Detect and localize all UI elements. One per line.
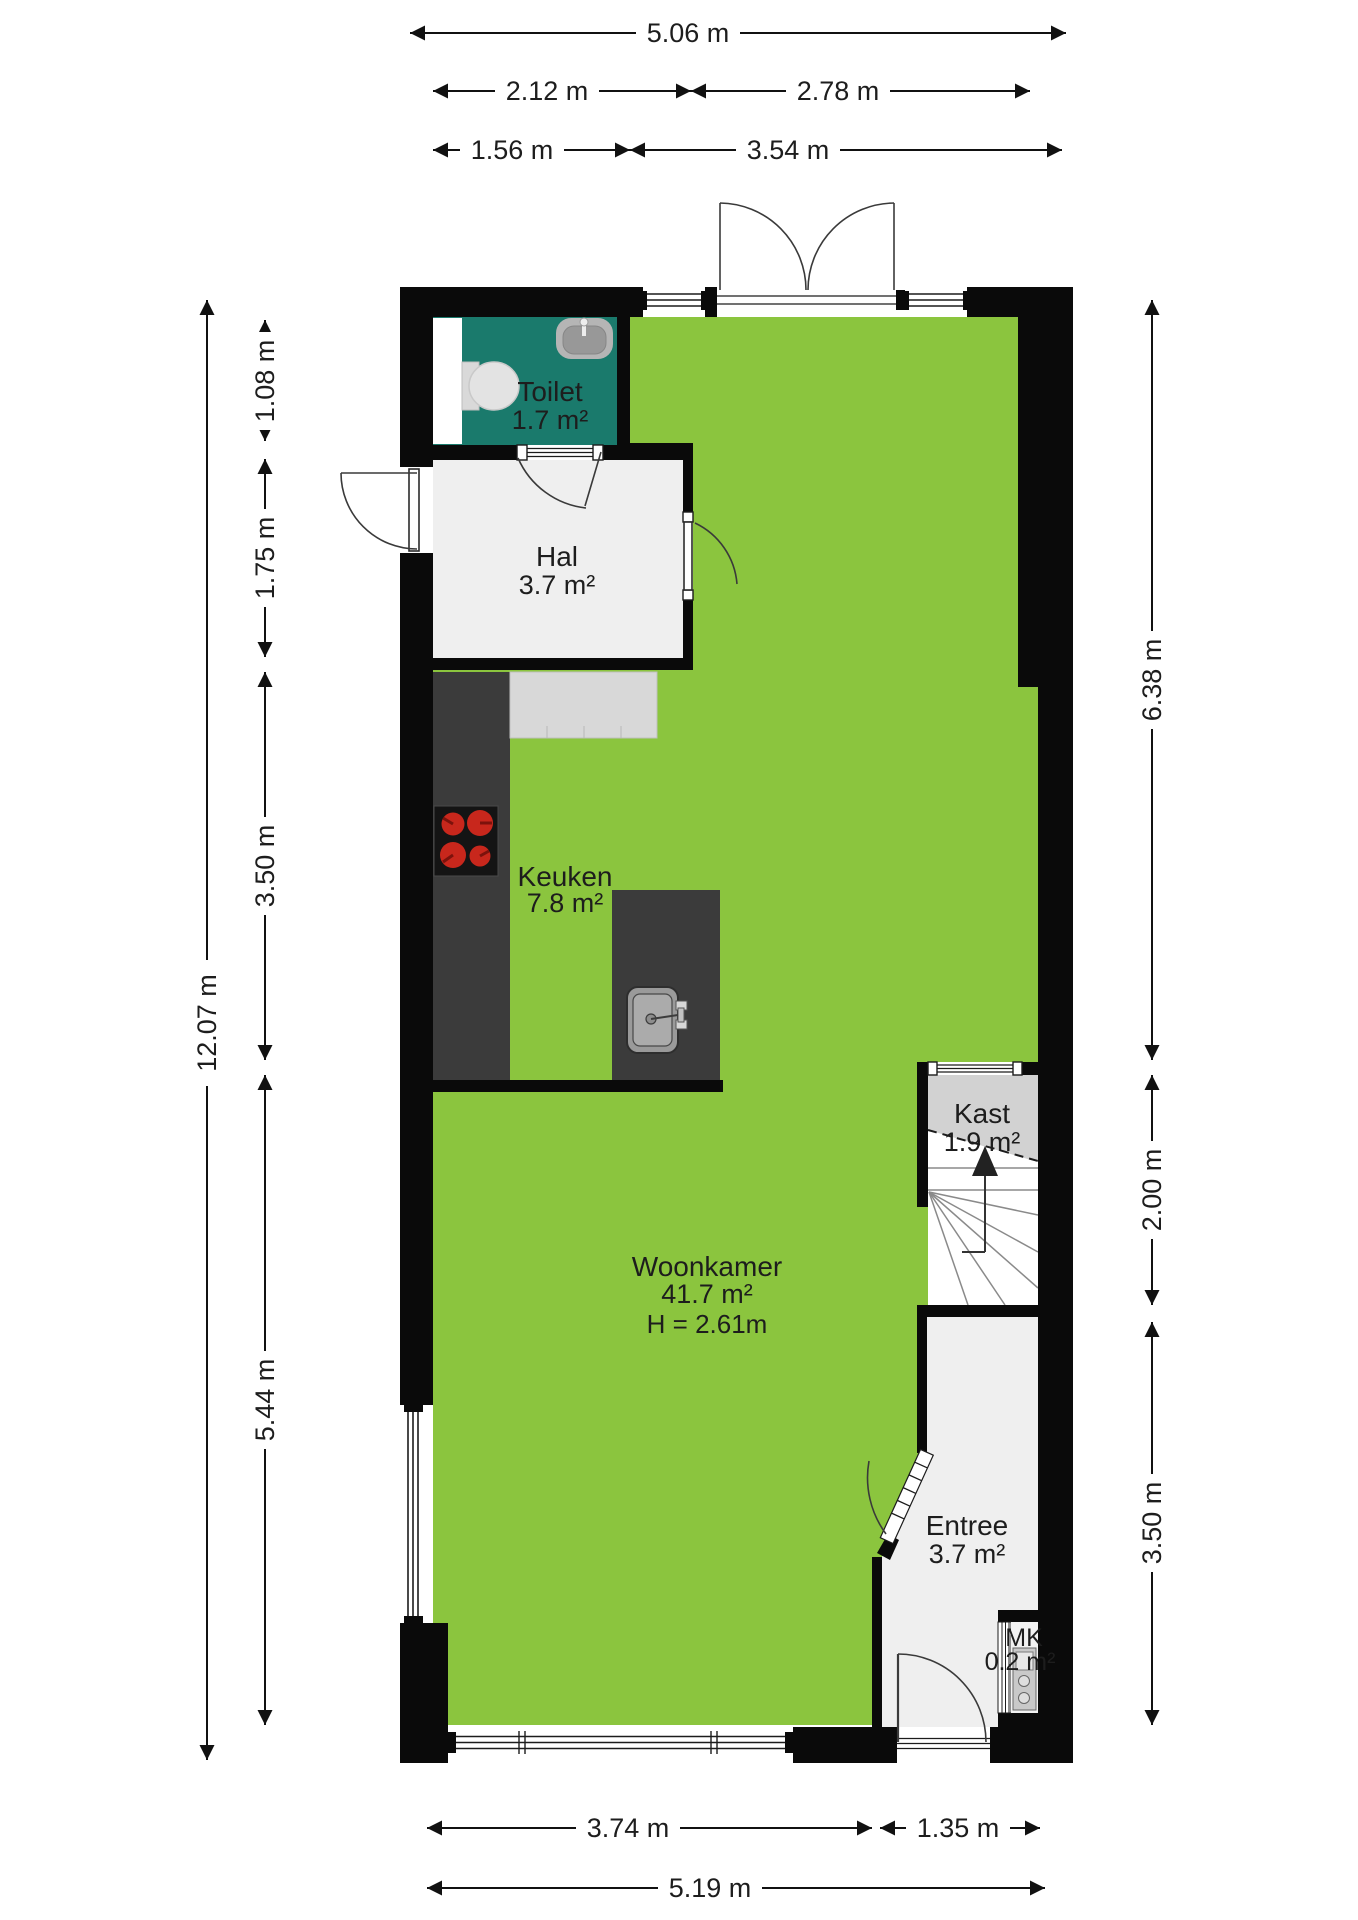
dim-top-total: 5.06 m (410, 18, 1066, 48)
hal-label: Hal (536, 541, 578, 572)
dim-left-seg3: 3.50 m (250, 672, 280, 1060)
toilet-area: 1.7 m² (512, 405, 589, 435)
svg-text:3.54 m: 3.54 m (747, 135, 830, 165)
dim-bottom-row1-left: 3.74 m (427, 1813, 872, 1843)
svg-text:2.00 m: 2.00 m (1137, 1149, 1167, 1232)
svg-text:1.56 m: 1.56 m (471, 135, 554, 165)
dim-right-seg1: 6.38 m (1137, 300, 1167, 1060)
dim-left-total: 12.07 m (192, 300, 222, 1760)
dim-left-seg2: 1.75 m (250, 459, 280, 657)
hal-area: 3.7 m² (519, 570, 596, 600)
mk-area: 0.2 m² (985, 1648, 1056, 1676)
floorplan-page: Toilet 1.7 m² Hal 3.7 m² Keuken 7.8 m² W… (0, 0, 1358, 1920)
svg-text:5.06 m: 5.06 m (647, 18, 730, 48)
dim-right-seg3: 3.50 m (1137, 1322, 1167, 1725)
svg-text:1.35 m: 1.35 m (917, 1813, 1000, 1843)
dim-top-row3-left: 1.56 m (433, 135, 630, 165)
woonkamer-area: 41.7 m² (661, 1279, 753, 1309)
svg-text:3.74 m: 3.74 m (587, 1813, 670, 1843)
dim-bottom-total: 5.19 m (427, 1873, 1045, 1903)
washbasin-icon (556, 318, 613, 359)
dim-left-seg4: 5.44 m (250, 1075, 280, 1725)
floorplan-canvas: Toilet 1.7 m² Hal 3.7 m² Keuken 7.8 m² W… (0, 0, 1358, 1920)
svg-text:1.08 m: 1.08 m (250, 340, 280, 423)
svg-text:5.44 m: 5.44 m (250, 1359, 280, 1442)
svg-text:2.78 m: 2.78 m (797, 76, 880, 106)
dim-top-row3-right: 3.54 m (630, 135, 1062, 165)
svg-text:1.75 m: 1.75 m (250, 517, 280, 600)
window-top-right (905, 287, 967, 317)
entree-label: Entree (926, 1510, 1009, 1541)
svg-text:12.07 m: 12.07 m (192, 974, 222, 1072)
dim-top-row2-right: 2.78 m (691, 76, 1030, 106)
dim-bottom-row1-right: 1.35 m (880, 1813, 1040, 1843)
woonkamer-height: H = 2.61m (647, 1309, 768, 1339)
entree-area: 3.7 m² (929, 1539, 1006, 1569)
svg-text:6.38 m: 6.38 m (1137, 639, 1167, 722)
svg-text:5.19 m: 5.19 m (669, 1873, 752, 1903)
window-top-left (643, 287, 705, 317)
cooktop-icon (434, 806, 498, 876)
double-door-top (717, 203, 896, 317)
dim-left-seg1: 1.08 m (250, 320, 280, 441)
svg-text:3.50 m: 3.50 m (1137, 1482, 1167, 1565)
kast-label: Kast (954, 1098, 1010, 1129)
toilet-label: Toilet (517, 376, 583, 407)
svg-text:3.50 m: 3.50 m (250, 825, 280, 908)
woonkamer-label: Woonkamer (632, 1251, 782, 1282)
kast-area: 1.9 m² (944, 1127, 1021, 1157)
window-left (400, 1405, 433, 1623)
door-hal-exterior (341, 467, 433, 553)
toilet-niche (433, 318, 462, 444)
window-bottom (448, 1727, 793, 1763)
keuken-area: 7.8 m² (527, 888, 604, 918)
dim-top-row2-left: 2.12 m (433, 76, 691, 106)
dim-right-seg2: 2.00 m (1137, 1075, 1167, 1305)
toilet-icon (462, 362, 519, 410)
svg-text:2.12 m: 2.12 m (506, 76, 589, 106)
kitchen-sink-icon (627, 987, 687, 1053)
kast-threshold (928, 1062, 1022, 1075)
